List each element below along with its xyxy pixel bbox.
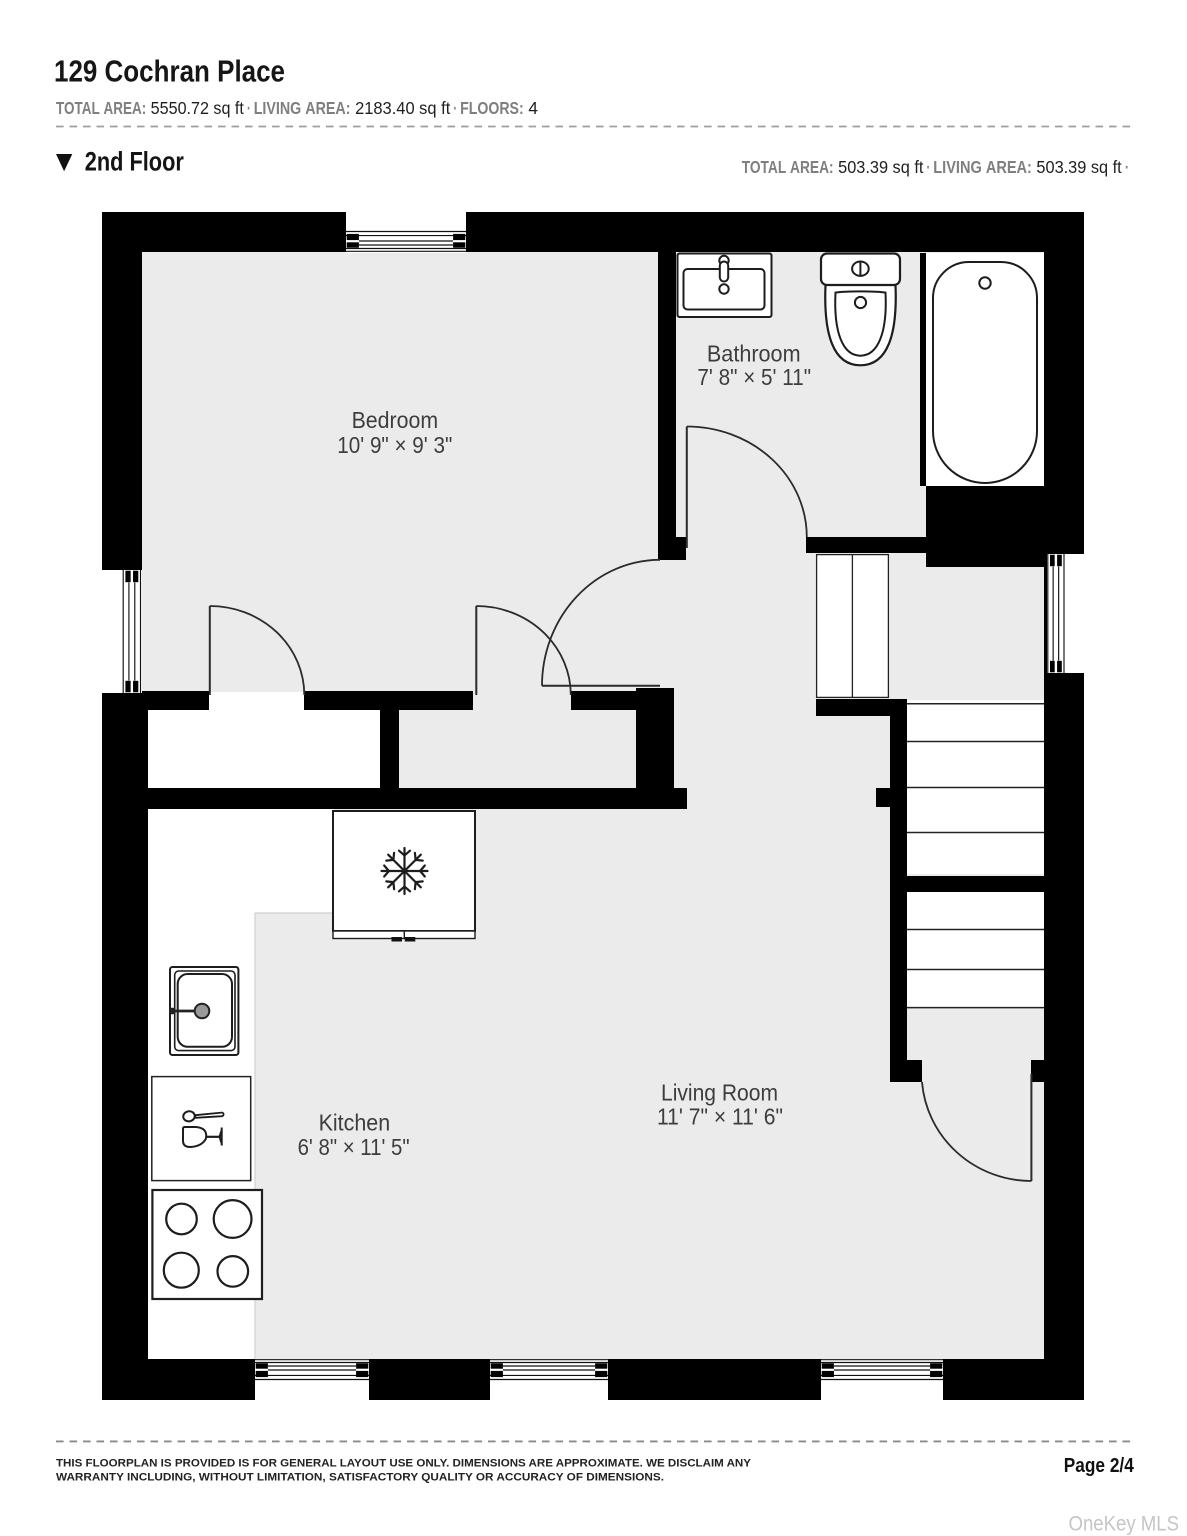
svg-text:WARRANTY INCLUDING, WITHOUT LI: WARRANTY INCLUDING, WITHOUT LIMITATION, … bbox=[56, 1472, 664, 1484]
svg-text:Page 2/4: Page 2/4 bbox=[1064, 1455, 1135, 1477]
svg-text:11' 7" × 11' 6": 11' 7" × 11' 6" bbox=[657, 1103, 783, 1129]
svg-text:7' 8" × 5' 11": 7' 8" × 5' 11" bbox=[697, 364, 811, 390]
svg-text:6' 8" × 11' 5": 6' 8" × 11' 5" bbox=[298, 1134, 410, 1160]
svg-text:Bedroom: Bedroom bbox=[352, 407, 439, 433]
svg-text:·: · bbox=[923, 157, 933, 177]
svg-text:·: · bbox=[1122, 157, 1129, 177]
svg-text:TOTAL AREA:: TOTAL AREA: bbox=[56, 98, 146, 118]
svg-text:TOTAL AREA:: TOTAL AREA: bbox=[742, 157, 834, 177]
svg-text:FLOORS:: FLOORS: bbox=[460, 98, 524, 118]
svg-text:Living Room: Living Room bbox=[661, 1079, 778, 1105]
svg-text:THIS FLOORPLAN IS PROVIDED IS: THIS FLOORPLAN IS PROVIDED IS FOR GENERA… bbox=[56, 1458, 751, 1470]
svg-text:503.39 sq ft: 503.39 sq ft bbox=[834, 157, 924, 177]
svg-text:4: 4 bbox=[524, 98, 539, 118]
svg-text:2nd Floor: 2nd Floor bbox=[85, 147, 184, 177]
svg-text:129 Cochran Place: 129 Cochran Place bbox=[54, 55, 285, 89]
svg-text:LIVING AREA:: LIVING AREA: bbox=[933, 157, 1032, 177]
svg-text:503.39 sq ft: 503.39 sq ft bbox=[1032, 157, 1122, 177]
svg-text:LIVING AREA:: LIVING AREA: bbox=[254, 98, 351, 118]
svg-text:Bathroom: Bathroom bbox=[707, 341, 801, 367]
svg-text:10' 9" × 9' 3": 10' 9" × 9' 3" bbox=[337, 432, 452, 458]
svg-text:·: · bbox=[450, 98, 460, 118]
svg-text:OneKey MLS: OneKey MLS bbox=[1069, 1512, 1180, 1536]
svg-text:2183.40 sq ft: 2183.40 sq ft bbox=[351, 98, 451, 118]
svg-text:5550.72 sq ft: 5550.72 sq ft bbox=[146, 98, 244, 118]
svg-text:·: · bbox=[244, 98, 254, 118]
svg-text:Kitchen: Kitchen bbox=[319, 1109, 391, 1135]
